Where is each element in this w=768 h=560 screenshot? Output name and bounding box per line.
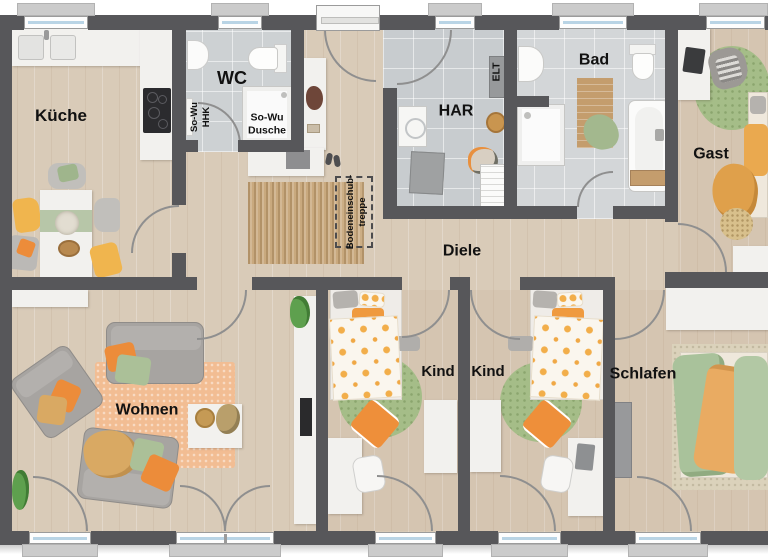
annotation-line: HHK: [201, 102, 213, 132]
washing-machine: [398, 106, 427, 147]
table-flowers: [55, 211, 79, 235]
door-mullion: [224, 534, 227, 543]
dining-chair-gray-right: [94, 198, 120, 232]
annotation-bodentreppe: Bodeneinschub- treppe: [345, 175, 369, 249]
window: [29, 532, 91, 544]
wall: [603, 277, 615, 545]
tv-screen: [300, 398, 312, 436]
bathtub-basin: [635, 107, 663, 179]
window-sill: [368, 544, 443, 557]
window: [218, 16, 262, 29]
window-glass: [222, 21, 258, 24]
terrace-door: [176, 532, 274, 544]
window-sill: [428, 3, 482, 16]
window-sill: [17, 3, 95, 16]
annotation-elt: ELT: [490, 62, 503, 81]
bedroom-wardrobe: [666, 288, 768, 330]
wall: [665, 15, 678, 222]
hall-storage-box: [286, 150, 310, 169]
gast-laptop: [682, 47, 705, 75]
window: [435, 16, 475, 29]
shower-drain-icon: [524, 112, 531, 119]
window: [24, 16, 88, 29]
bath-toilet: [632, 53, 654, 80]
burner-icon: [147, 92, 158, 103]
annotation-line: So-Wu: [248, 111, 286, 124]
wall: [316, 277, 328, 545]
front-door-panel: [321, 17, 379, 24]
har-storage-box: [409, 151, 445, 195]
wall: [380, 15, 435, 30]
hall-books: [307, 124, 320, 133]
wall: [88, 15, 218, 30]
pillow-tan-icon: [36, 394, 68, 426]
annotation-sowu-hhk: So-Wu HHK: [189, 102, 213, 132]
floor-plan: Küche WC HAR Bad Gast Diele Wohnen Kind …: [0, 0, 768, 560]
window-glass: [379, 537, 432, 540]
wall: [561, 531, 635, 545]
gold-tray: [195, 408, 215, 428]
kind2-desk-laptop: [575, 443, 596, 471]
pillow-green-icon: [114, 354, 152, 386]
window-glass: [33, 537, 87, 540]
wall: [262, 15, 318, 30]
living-sideboard: [12, 290, 88, 307]
wall: [0, 277, 197, 290]
window: [498, 532, 561, 544]
window-glass: [502, 537, 557, 540]
kind1-pillow-gray: [332, 290, 358, 309]
annotation-line: So-Wu: [189, 102, 201, 132]
burner-icon: [158, 95, 167, 104]
wall: [475, 15, 559, 30]
wall: [701, 531, 768, 545]
duvet-green-right: [734, 356, 768, 480]
wall: [613, 206, 670, 219]
window: [635, 532, 701, 544]
kind1-duvet: [329, 315, 402, 400]
hall-vase-flowers: [306, 86, 323, 110]
annotation-line: Dusche: [248, 124, 286, 137]
drying-rack: [480, 164, 505, 210]
annotation-sowu-dusche: So-Wu Dusche: [248, 111, 286, 136]
wc-toilet: [248, 47, 278, 70]
wall: [383, 88, 397, 206]
room-label-gast: Gast: [693, 144, 729, 163]
window-sill: [699, 3, 768, 16]
room-label-kueche: Küche: [35, 106, 87, 126]
kitchen-faucet: [44, 30, 49, 40]
potted-plant: [290, 296, 310, 328]
striped-cushion: [715, 55, 743, 84]
window-sill: [211, 3, 269, 16]
dining-chair-yellow-left: [12, 196, 42, 233]
wall: [458, 277, 470, 545]
kind2-pillow-gray: [532, 290, 557, 309]
room-label-wohnen: Wohnen: [116, 400, 179, 419]
wall: [291, 15, 304, 152]
annotation-line: treppe: [357, 175, 369, 249]
room-label-wc: WC: [217, 68, 247, 90]
window: [375, 532, 436, 544]
wall: [665, 272, 768, 288]
wall: [504, 96, 549, 107]
table-bowl: [58, 240, 80, 257]
room-label-kind1: Kind: [421, 363, 454, 381]
burner-icon: [148, 107, 160, 119]
laundry-basket: [486, 112, 506, 133]
room-label-har: HAR: [439, 101, 474, 120]
window-sill: [169, 544, 281, 557]
window-glass: [439, 21, 471, 24]
wall: [172, 15, 186, 205]
bath-faucet-icon: [655, 129, 664, 141]
window-sill: [22, 544, 98, 557]
front-door: [316, 5, 380, 31]
window-glass: [28, 21, 84, 24]
wall: [172, 140, 198, 152]
room-label-bad: Bad: [579, 50, 609, 69]
burner-icon: [158, 119, 168, 129]
bathtub-caddy: [630, 170, 668, 186]
gast-pouf: [720, 208, 753, 240]
kitchen-sink-basin-1: [18, 35, 44, 60]
gast-bed-pillow: [750, 96, 766, 114]
kind1-wardrobe: [424, 400, 457, 473]
window-sill: [552, 3, 634, 16]
kind2-duvet: [530, 315, 604, 401]
window-glass: [639, 537, 697, 540]
kind2-pillow-dotted: [557, 291, 584, 308]
kind1-pillow-dotted: [358, 291, 385, 308]
wall: [91, 531, 176, 545]
window-sill: [628, 544, 708, 557]
window: [559, 16, 627, 29]
window-sill: [491, 544, 568, 557]
room-label-schlafen: Schlafen: [610, 364, 677, 383]
kind2-wardrobe: [470, 400, 501, 472]
window: [706, 16, 765, 29]
window-glass: [710, 21, 761, 24]
kitchen-sink-basin-2: [50, 35, 76, 60]
wall: [520, 277, 615, 290]
shower-drain-icon: [281, 92, 287, 98]
cooktop: [143, 88, 171, 133]
wall: [383, 206, 577, 219]
washer-door-icon: [405, 118, 426, 139]
window-glass: [563, 21, 623, 24]
room-label-kind2: Kind: [471, 363, 504, 381]
annotation-line: Bodeneinschub-: [345, 175, 357, 249]
room-label-diele: Diele: [443, 241, 481, 260]
wall: [504, 15, 517, 206]
